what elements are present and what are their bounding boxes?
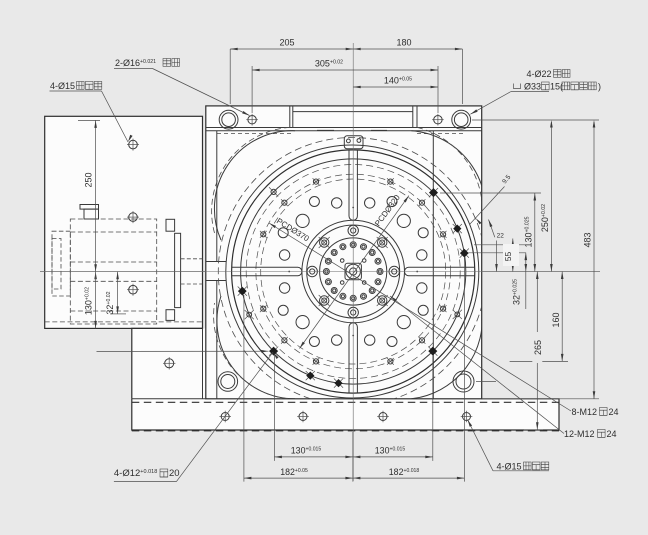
svg-text:265: 265 [533,340,543,355]
svg-text:130+0.015: 130+0.015 [291,445,322,455]
svg-text:130+0.025: 130+0.025 [524,216,534,247]
svg-text:140+0.05: 140+0.05 [384,76,412,86]
svg-text:182+0.018: 182+0.018 [389,467,420,477]
svg-text:55: 55 [503,252,513,262]
svg-text:9.5: 9.5 [501,174,512,186]
svg-text:22: 22 [497,233,505,240]
svg-text:250: 250 [84,172,94,187]
svg-text:483: 483 [583,232,593,247]
svg-text:24: 24 [607,429,617,439]
svg-text:Ø33: Ø33 [524,82,541,92]
svg-text:2-Ø16+0.021: 2-Ø16+0.021 [115,58,156,68]
svg-text:15(: 15( [550,82,563,92]
svg-text:130+0.015: 130+0.015 [375,445,406,455]
svg-text:): ) [598,82,601,92]
svg-text:8-M12: 8-M12 [572,407,598,417]
svg-text:305+0.02: 305+0.02 [315,59,343,69]
svg-text:250+0.02: 250+0.02 [540,204,550,232]
svg-text:182+0.05: 182+0.05 [280,467,308,477]
svg-text:180: 180 [396,38,411,48]
svg-text:4-Ø15: 4-Ø15 [497,462,522,472]
svg-text:24: 24 [609,407,619,417]
svg-text:20: 20 [169,468,180,479]
svg-text:4-Ø12+0.018: 4-Ø12+0.018 [114,468,157,479]
svg-text:205: 205 [279,38,294,48]
svg-text:160: 160 [551,312,561,327]
svg-text:4-Ø15: 4-Ø15 [50,81,75,91]
svg-text:12-M12: 12-M12 [564,429,595,439]
svg-text:4-Ø22: 4-Ø22 [527,69,552,79]
